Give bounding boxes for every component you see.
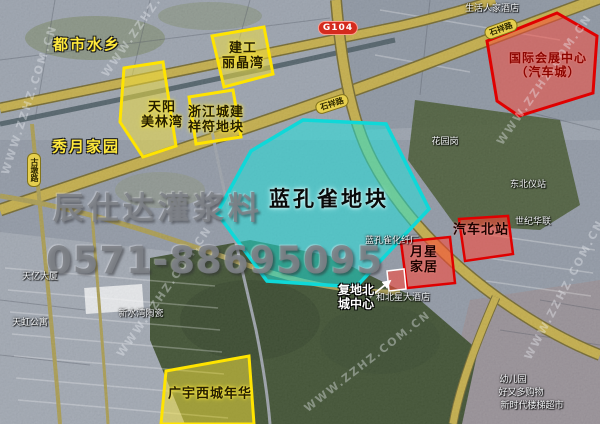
plot-label-lankongque: 蓝孔雀地块	[269, 187, 389, 211]
poi-label-youeryuan: 幼儿园	[499, 375, 526, 385]
plot-label-line: 浙江城建	[188, 106, 244, 121]
plot-label-line: 丽晶湾	[222, 57, 264, 72]
poi-label-hebeixing-hotel: 和北星大酒店	[376, 293, 430, 303]
plot-label-qiche-beizhan: 汽车北站	[453, 224, 509, 239]
poi-label-lankongque-factory: 蓝孔雀化纤厂	[365, 236, 419, 246]
poi-label-shiji-hualian: 世纪华联	[515, 217, 551, 227]
plot-label-line: 复地北	[338, 284, 374, 298]
satellite-map-canvas: WWW.ZZHZ.COM.CN WWW.ZZHZ.COM.CN WWW.ZZHZ…	[0, 0, 600, 424]
plot-label-line: 天阳	[141, 101, 183, 116]
plot-label-line: （汽车城）	[509, 66, 587, 80]
poi-label-dongbei-yizhan: 东北仪站	[510, 180, 546, 190]
plot-label-line: 家居	[410, 261, 438, 276]
plot-label-line: 祥符地块	[188, 121, 244, 136]
poi-label-tianhong-apartment: 天虹公寓	[12, 318, 48, 328]
plot-label-guangyu: 广宇西城年华	[168, 388, 252, 403]
plot-label-line: 建工	[222, 42, 264, 57]
plot-label-line: 城中心	[338, 298, 374, 312]
poi-label-tianyi-building: 天亿大厦	[22, 272, 58, 282]
poi-label-huayuangang: 花园岗	[431, 137, 458, 147]
plot-label-line: 国际会展中心	[509, 52, 587, 66]
poi-label-shenghuo-renjia: 生活人家酒店	[465, 4, 519, 14]
plot-label-line: 美林湾	[141, 116, 183, 131]
brand-watermark: 辰仕达灌浆料	[53, 192, 263, 228]
plot-label-zhejiang: 浙江城建 祥符地块	[188, 106, 244, 136]
gudun-road-sign: 古墩路	[27, 153, 41, 187]
plot-label-line: 月星	[410, 246, 438, 261]
poi-label-haoyouduo: 好又多购物	[498, 388, 543, 398]
poi-label-xinshuiwan-ceramics: 新水湾陶瓷	[118, 309, 163, 319]
poi-label-xinshidai-market: 新时代楼梯超市	[500, 401, 563, 411]
plot-label-fudi: 复地北 城中心	[338, 284, 374, 312]
area-label-dushi-shuixiang: 都市水乡	[53, 36, 121, 53]
plot-label-tianyang: 天阳 美林湾	[141, 101, 183, 131]
plot-label-yuexing: 月星 家居	[410, 246, 438, 276]
phone-watermark: 0571-88695095	[46, 240, 383, 283]
plot-label-jiangong: 建工 丽晶湾	[222, 42, 264, 72]
plot-fudi-beicheng	[387, 269, 406, 291]
area-label-xiuyue-jiayuan: 秀月家园	[52, 138, 120, 155]
plot-label-huizhan: 国际会展中心 （汽车城）	[509, 52, 587, 80]
g104-road-sign: G104	[318, 21, 358, 35]
